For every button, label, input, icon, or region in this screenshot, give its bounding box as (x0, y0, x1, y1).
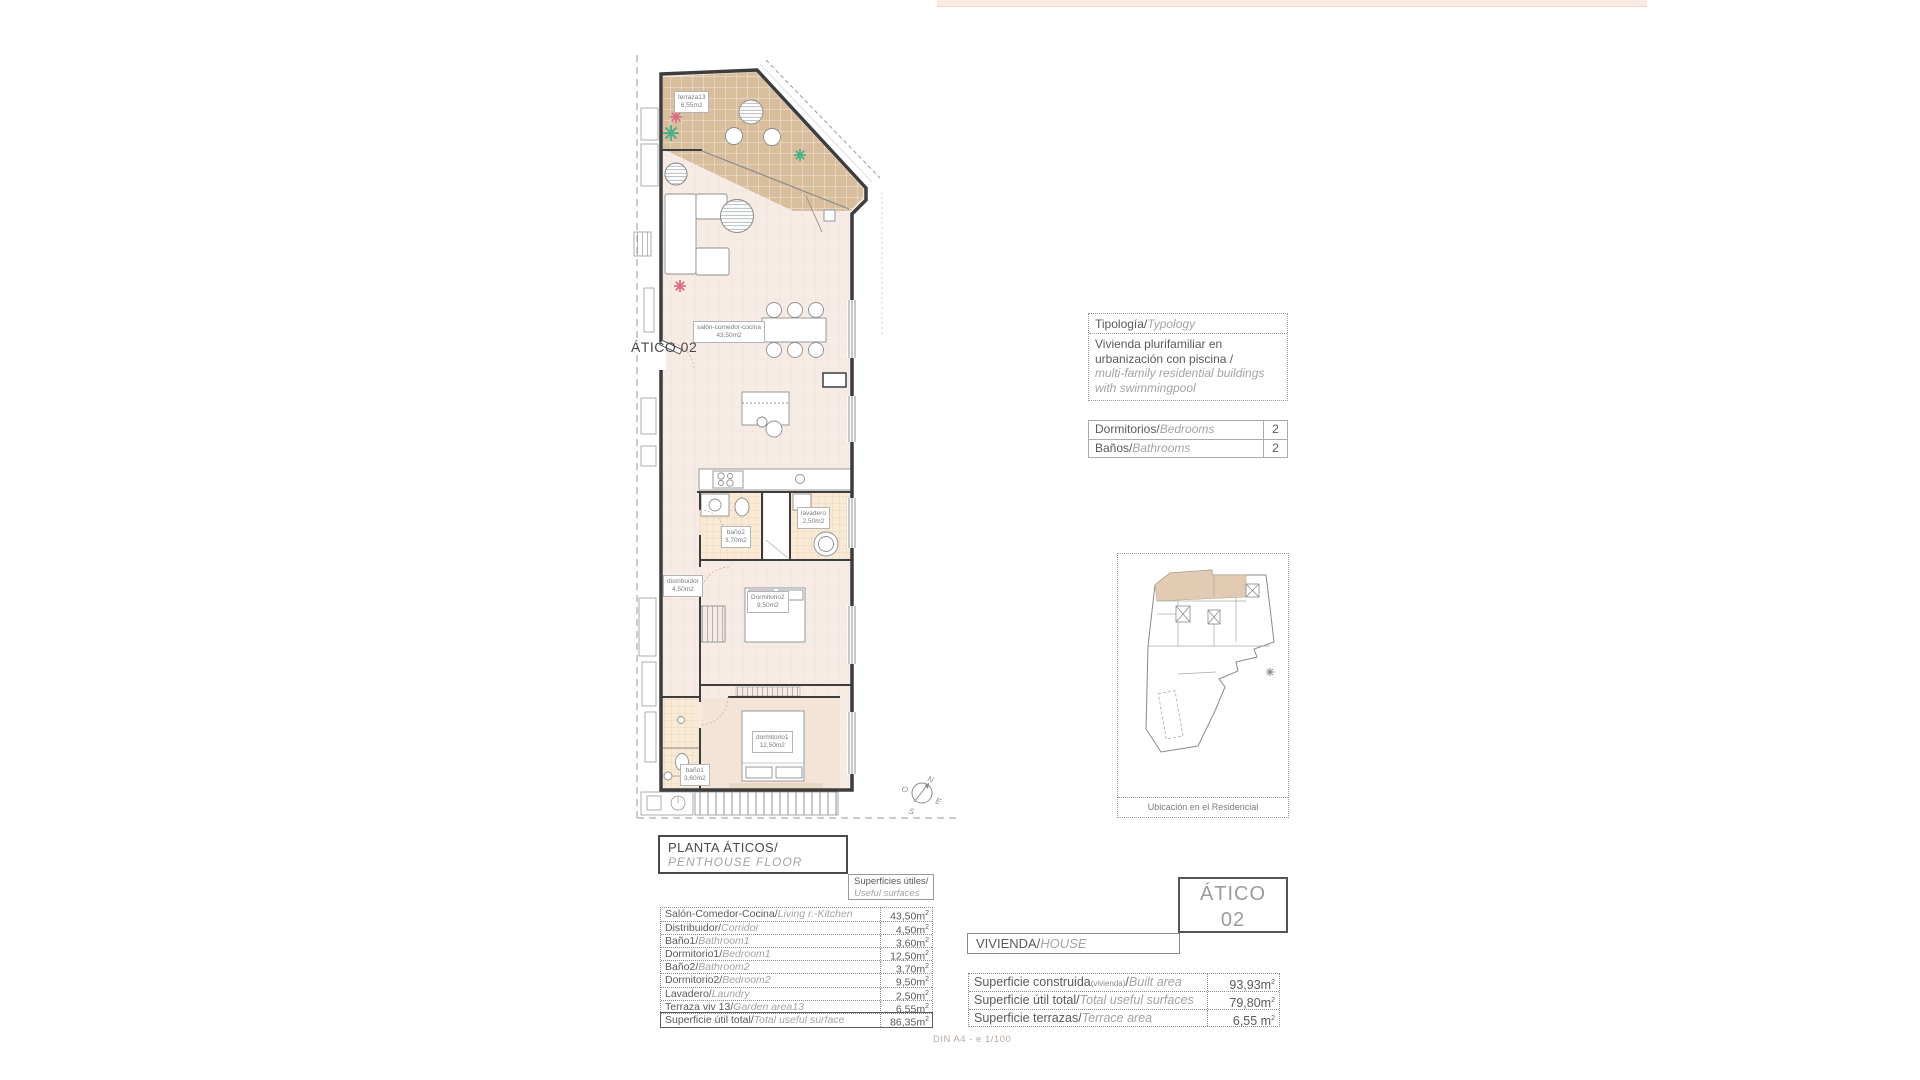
unit-id-line1: ÁTICO (1180, 881, 1286, 907)
room-label-lavadero: lavadero2,50m2 (797, 507, 830, 529)
room-label-dormitorio2: Dormitorio29,50m2 (747, 591, 789, 613)
floor-title-en: PENTHOUSE FLOOR (668, 855, 846, 869)
compass-e: E (934, 796, 942, 806)
sofa (665, 194, 696, 274)
scale-note: DIN A4 - e 1/100 (933, 1034, 1011, 1045)
room-label-bano1: baño13,60m2 (680, 764, 710, 786)
table-row: Baño2/Bathroom2 3,70m2 (661, 960, 932, 973)
table-row: Superficie útil total/Total useful surfa… (969, 991, 1279, 1008)
room-label-terraza: terraza136,55m2 (674, 91, 709, 113)
balcony (695, 792, 838, 815)
typology-body: Vivienda plurifamiliar en urbanización c… (1089, 334, 1287, 400)
compass-s: S (907, 806, 915, 816)
typology-title: Tipología/Typology (1089, 314, 1287, 334)
location-caption: Ubicación en el Residencial (1118, 797, 1288, 817)
balcony-units (641, 792, 693, 815)
room-label-distribuidor: distribuidor4,50m2 (663, 575, 703, 597)
compass-o: O (900, 784, 909, 794)
dining-table (762, 303, 826, 358)
useful-surfaces-table: Salón-Comedor-Cocina/Living r.-Kitchen 4… (660, 907, 933, 1028)
unit-id-box: ÁTICO 02 (1178, 877, 1288, 933)
stats-row-bathrooms: Baños/Bathrooms 2 (1089, 439, 1287, 457)
typology-box: Tipología/Typology Vivienda plurifamilia… (1088, 313, 1288, 401)
table-row: Terraza viv 13/Garden area13 6,55m2 (661, 1000, 932, 1013)
floor-title-box: PLANTA ÁTICOS/ PENTHOUSE FLOOR (658, 835, 848, 874)
top-page-edge-strip (937, 0, 1647, 7)
table-row: Dormitorio1/Bedroom1 12,50m2 (661, 947, 932, 960)
table-row: Dormitorio2/Bedroom2 9,50m2 (661, 973, 932, 986)
room-label-salon: salón-comedor-cocina43,50m2 (693, 321, 765, 343)
room-label-dormitorio1: dormitorio112,50m2 (752, 731, 793, 753)
compass: N O E S (900, 774, 942, 816)
table-row: Superficie terrazas/Terrace area 6,55 m2 (969, 1009, 1279, 1026)
wind-mark-icon (1266, 668, 1274, 676)
table-row: Salón-Comedor-Cocina/Living r.-Kitchen 4… (661, 908, 932, 921)
location-drawing (1118, 554, 1288, 797)
vivienda-header: VIVIENDA/HOUSE (967, 933, 1180, 954)
table-row: Lavadero/Laundry 2,50m2 (661, 987, 932, 1000)
unit-label: ÁTICO 02 (631, 339, 697, 355)
compass-n: N (926, 774, 934, 784)
floor-plan-drawing: N O E S (615, 50, 960, 825)
plant-icon (663, 125, 679, 141)
sheet: N O E S terraza136,55m2 salón-comedor-co… (0, 0, 1920, 1080)
table-row: Superficie construida(vivienda)/Built ar… (969, 974, 1279, 991)
exterior-shafts (634, 108, 658, 762)
unit-id-line2: 02 (1180, 907, 1286, 933)
vivienda-table: Superficie construida(vivienda)/Built ar… (968, 973, 1280, 1027)
stats-row-bedrooms: Dormitorios/Bedrooms 2 (1089, 421, 1287, 439)
floor-plan: N O E S terraza136,55m2 salón-comedor-co… (615, 50, 960, 825)
shaft (764, 493, 789, 559)
useful-surfaces-header: Superficies útiles/ Useful surfaces (848, 874, 934, 900)
table-row: Baño1/Bathroom1 3,60m2 (661, 934, 932, 947)
floor-title-es: PLANTA ÁTICOS/ (668, 840, 846, 855)
table-row: Distribuidor/Corridor 4,50m2 (661, 921, 932, 934)
room-label-bano2: baño23,70m2 (721, 526, 751, 548)
stats-table: Dormitorios/Bedrooms 2 Baños/Bathrooms 2 (1088, 420, 1288, 458)
location-diagram: Ubicación en el Residencial (1117, 553, 1289, 818)
kitchen-counter (699, 469, 852, 490)
table-total-row: Superficie útil total/Total useful surfa… (661, 1013, 932, 1027)
